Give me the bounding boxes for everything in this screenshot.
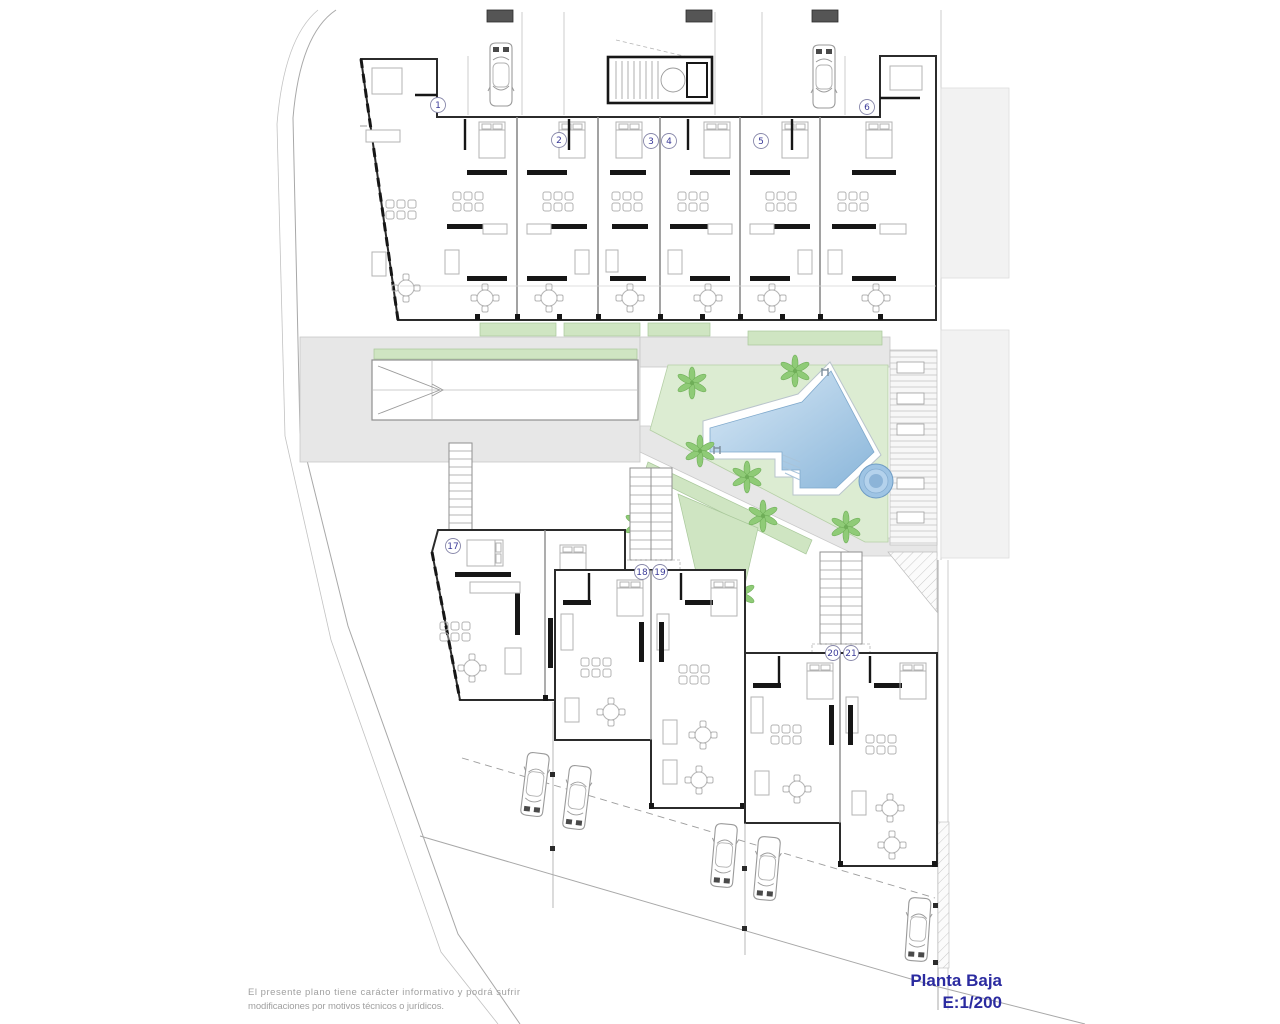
unit-badge-19: 19 <box>653 565 668 580</box>
car-icon <box>488 43 514 106</box>
staircase-right <box>812 552 870 658</box>
car-icon <box>560 765 593 831</box>
deck-corner <box>888 552 937 612</box>
unit-badge-17: 17 <box>446 539 461 554</box>
unit-badge-18: 18 <box>635 565 650 580</box>
car-icon <box>751 836 782 901</box>
svg-text:3: 3 <box>648 137 654 147</box>
svg-text:20: 20 <box>827 649 839 659</box>
car-icon <box>708 823 739 888</box>
disclaimer-line-1: El presente plano tiene carácter informa… <box>248 987 520 998</box>
unit-badge-3: 3 <box>644 134 659 149</box>
boundary-hatch-strip <box>938 822 949 968</box>
unit-badge-6: 6 <box>860 100 875 115</box>
unit-badge-21: 21 <box>844 646 859 661</box>
unit-badge-1: 1 <box>431 98 446 113</box>
svg-text:6: 6 <box>864 103 870 113</box>
stair-elevator-core <box>608 40 712 103</box>
svg-text:2: 2 <box>556 136 562 146</box>
plan-scale: E:1/200 <box>942 993 1002 1012</box>
svg-text:19: 19 <box>654 568 666 578</box>
car-icon <box>811 45 837 108</box>
bottom-block-units-20-21 <box>745 653 937 867</box>
sidewalk-strips <box>941 88 1009 558</box>
unit-badge-4: 4 <box>662 134 677 149</box>
disclaimer-line-2: modificaciones por motivos técnicos o ju… <box>248 1001 444 1012</box>
svg-text:5: 5 <box>758 137 764 147</box>
svg-text:21: 21 <box>845 649 856 659</box>
svg-text:1: 1 <box>435 101 441 111</box>
unit-badge-5: 5 <box>754 134 769 149</box>
svg-text:4: 4 <box>666 137 672 147</box>
unit-badge-2: 2 <box>552 133 567 148</box>
staircase-left <box>449 443 472 532</box>
round-jacuzzi <box>859 464 893 498</box>
car-icon <box>518 752 551 818</box>
garage-ramp <box>372 360 638 420</box>
svg-text:18: 18 <box>636 568 648 578</box>
floor-plan-page: 1234561718192021 Planta Baja E:1/200 El … <box>0 0 1280 1024</box>
car-icon <box>903 897 933 962</box>
top-parking-area <box>468 10 845 115</box>
floor-plan-canvas: 1234561718192021 Planta Baja E:1/200 El … <box>0 0 1280 1024</box>
staircase-center <box>622 468 680 576</box>
svg-text:17: 17 <box>447 542 458 552</box>
unit-badge-20: 20 <box>826 646 841 661</box>
planter-blocks <box>487 10 838 22</box>
plan-title: Planta Baja <box>910 971 1002 990</box>
